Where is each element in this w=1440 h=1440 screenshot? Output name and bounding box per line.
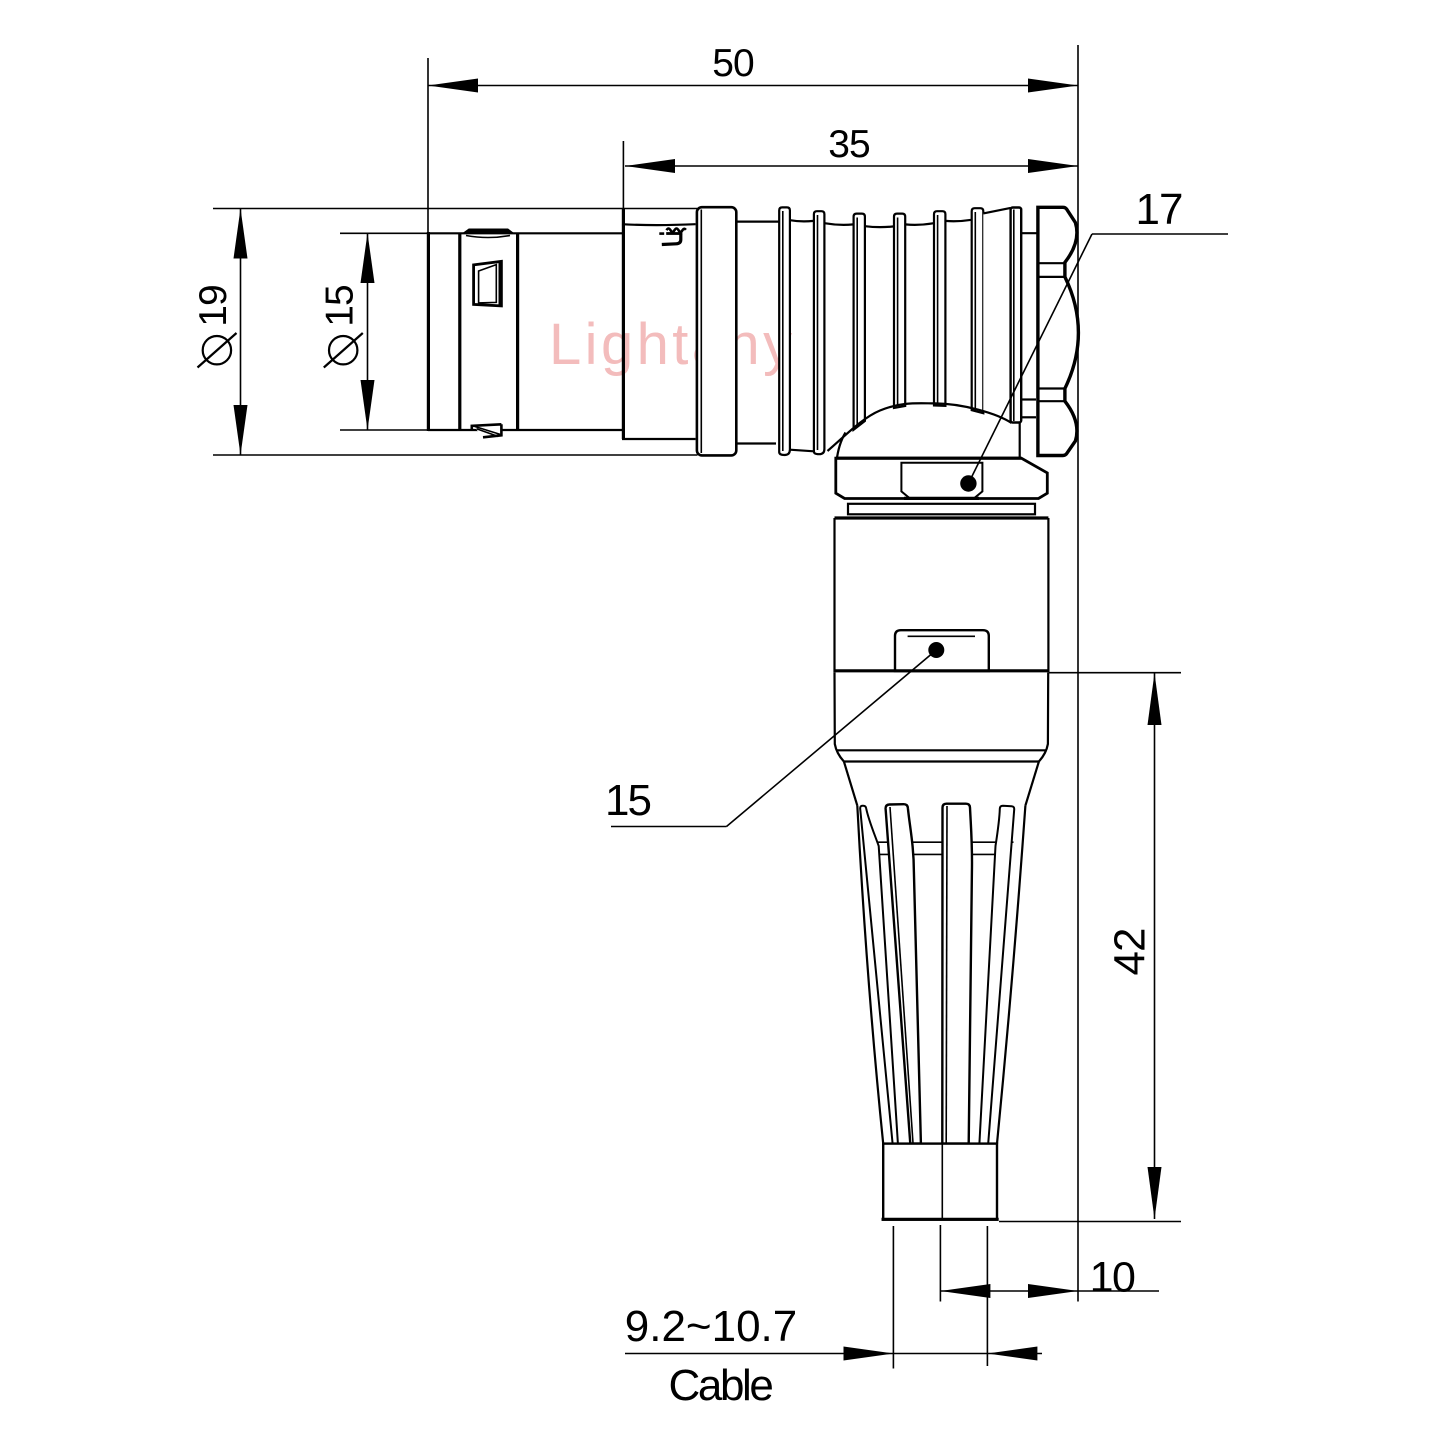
svg-text:19: 19 <box>192 285 235 326</box>
svg-text:Cable: Cable <box>669 1361 773 1410</box>
svg-text:35: 35 <box>828 123 870 166</box>
svg-text:50: 50 <box>712 42 754 85</box>
svg-text:42: 42 <box>1105 929 1154 976</box>
svg-text:15: 15 <box>605 776 650 825</box>
svg-text:Lightany: Lightany <box>549 312 795 377</box>
svg-text:10: 10 <box>1090 1254 1135 1302</box>
svg-text:17: 17 <box>1136 185 1183 234</box>
svg-text:9.2~10.7: 9.2~10.7 <box>625 1302 798 1351</box>
svg-text:15: 15 <box>319 285 362 327</box>
